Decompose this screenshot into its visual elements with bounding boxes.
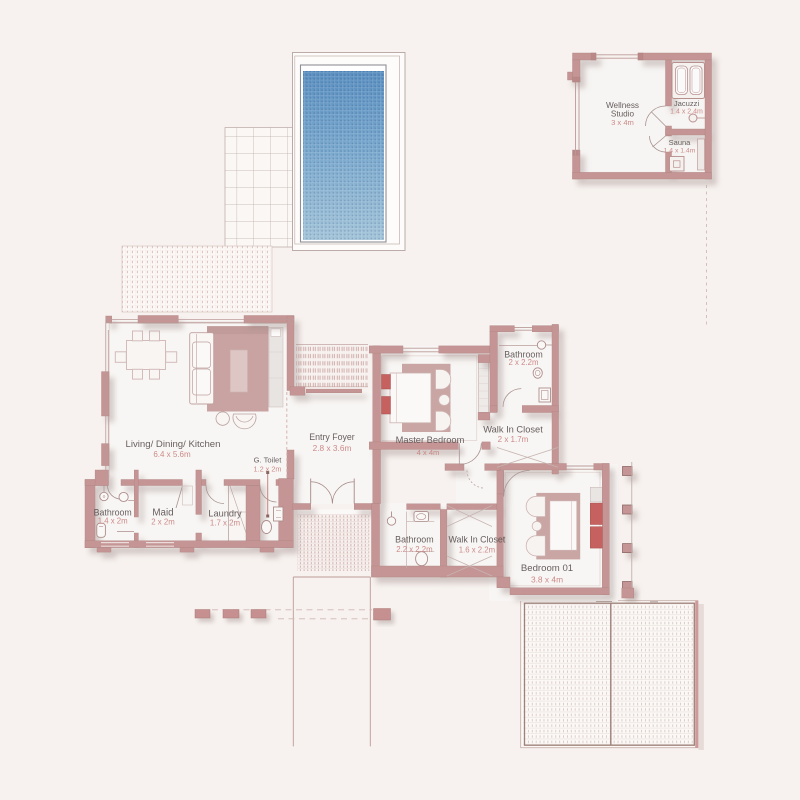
svg-text:2.2 x 2.2m: 2.2 x 2.2m [396, 545, 432, 554]
svg-text:6.4 x 5.6m: 6.4 x 5.6m [153, 450, 191, 459]
svg-text:1.4 x 2m: 1.4 x 2m [98, 517, 128, 526]
svg-text:1.7 x 2m: 1.7 x 2m [210, 519, 241, 528]
svg-text:2 x 2.2m: 2 x 2.2m [509, 358, 539, 367]
svg-text:Laundry: Laundry [208, 509, 242, 519]
svg-text:4 x 4m: 4 x 4m [417, 448, 440, 457]
svg-text:1.2 x 2m: 1.2 x 2m [254, 465, 282, 474]
svg-text:3.8 x 4m: 3.8 x 4m [531, 575, 563, 585]
svg-text:Living/ Dining/ Kitchen: Living/ Dining/ Kitchen [126, 439, 221, 450]
svg-text:2 x 2m: 2 x 2m [151, 518, 174, 527]
svg-text:1.4 x 1.4m: 1.4 x 1.4m [664, 148, 696, 155]
svg-text:Master Bedroom: Master Bedroom [396, 435, 465, 445]
svg-text:Sauna: Sauna [669, 138, 692, 147]
svg-text:Bedroom 01: Bedroom 01 [521, 563, 573, 574]
svg-text:2 x 1.7m: 2 x 1.7m [498, 435, 529, 444]
svg-text:1.4 x 2.4m: 1.4 x 2.4m [670, 109, 703, 116]
svg-text:G. Toilet: G. Toilet [254, 456, 283, 465]
svg-text:2.8 x 3.6m: 2.8 x 3.6m [313, 443, 352, 453]
svg-text:1.6 x 2.2m: 1.6 x 2.2m [459, 546, 495, 555]
svg-text:Walk In Closet: Walk In Closet [448, 535, 505, 545]
svg-text:Bathroom: Bathroom [395, 535, 433, 545]
svg-text:Walk In Closet: Walk In Closet [483, 425, 543, 435]
svg-text:Jacuzzi: Jacuzzi [674, 99, 700, 108]
svg-text:3 x 4m: 3 x 4m [611, 118, 634, 127]
svg-text:Entry Foyer: Entry Foyer [309, 432, 355, 442]
